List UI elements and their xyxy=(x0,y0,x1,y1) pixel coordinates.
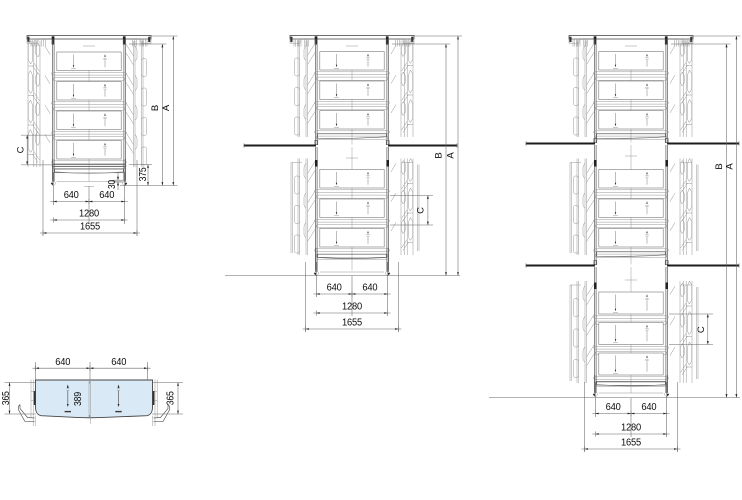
svg-text:640: 640 xyxy=(641,402,657,413)
svg-text:C: C xyxy=(696,326,707,333)
svg-text:1655: 1655 xyxy=(80,222,101,233)
svg-text:640: 640 xyxy=(606,402,622,413)
svg-text:A: A xyxy=(724,163,735,170)
svg-text:365: 365 xyxy=(1,391,12,406)
svg-text:A: A xyxy=(446,152,457,159)
svg-text:A: A xyxy=(161,104,172,111)
svg-text:640: 640 xyxy=(55,357,71,368)
svg-text:1280: 1280 xyxy=(621,423,642,434)
svg-text:640: 640 xyxy=(64,190,80,201)
svg-text:1655: 1655 xyxy=(621,438,642,449)
svg-text:375: 375 xyxy=(138,167,149,182)
svg-text:640: 640 xyxy=(99,190,115,201)
svg-text:30: 30 xyxy=(107,179,118,189)
svg-text:1280: 1280 xyxy=(342,302,363,313)
svg-text:C: C xyxy=(16,146,27,153)
svg-text:640: 640 xyxy=(327,283,343,294)
svg-text:C: C xyxy=(416,207,427,214)
svg-text:389: 389 xyxy=(73,391,84,406)
svg-text:B: B xyxy=(150,105,161,111)
svg-text:640: 640 xyxy=(362,283,378,294)
svg-text:365: 365 xyxy=(165,391,176,406)
svg-text:1655: 1655 xyxy=(342,318,363,329)
svg-text:640: 640 xyxy=(111,357,127,368)
svg-text:B: B xyxy=(434,152,445,158)
svg-text:1280: 1280 xyxy=(79,209,100,220)
